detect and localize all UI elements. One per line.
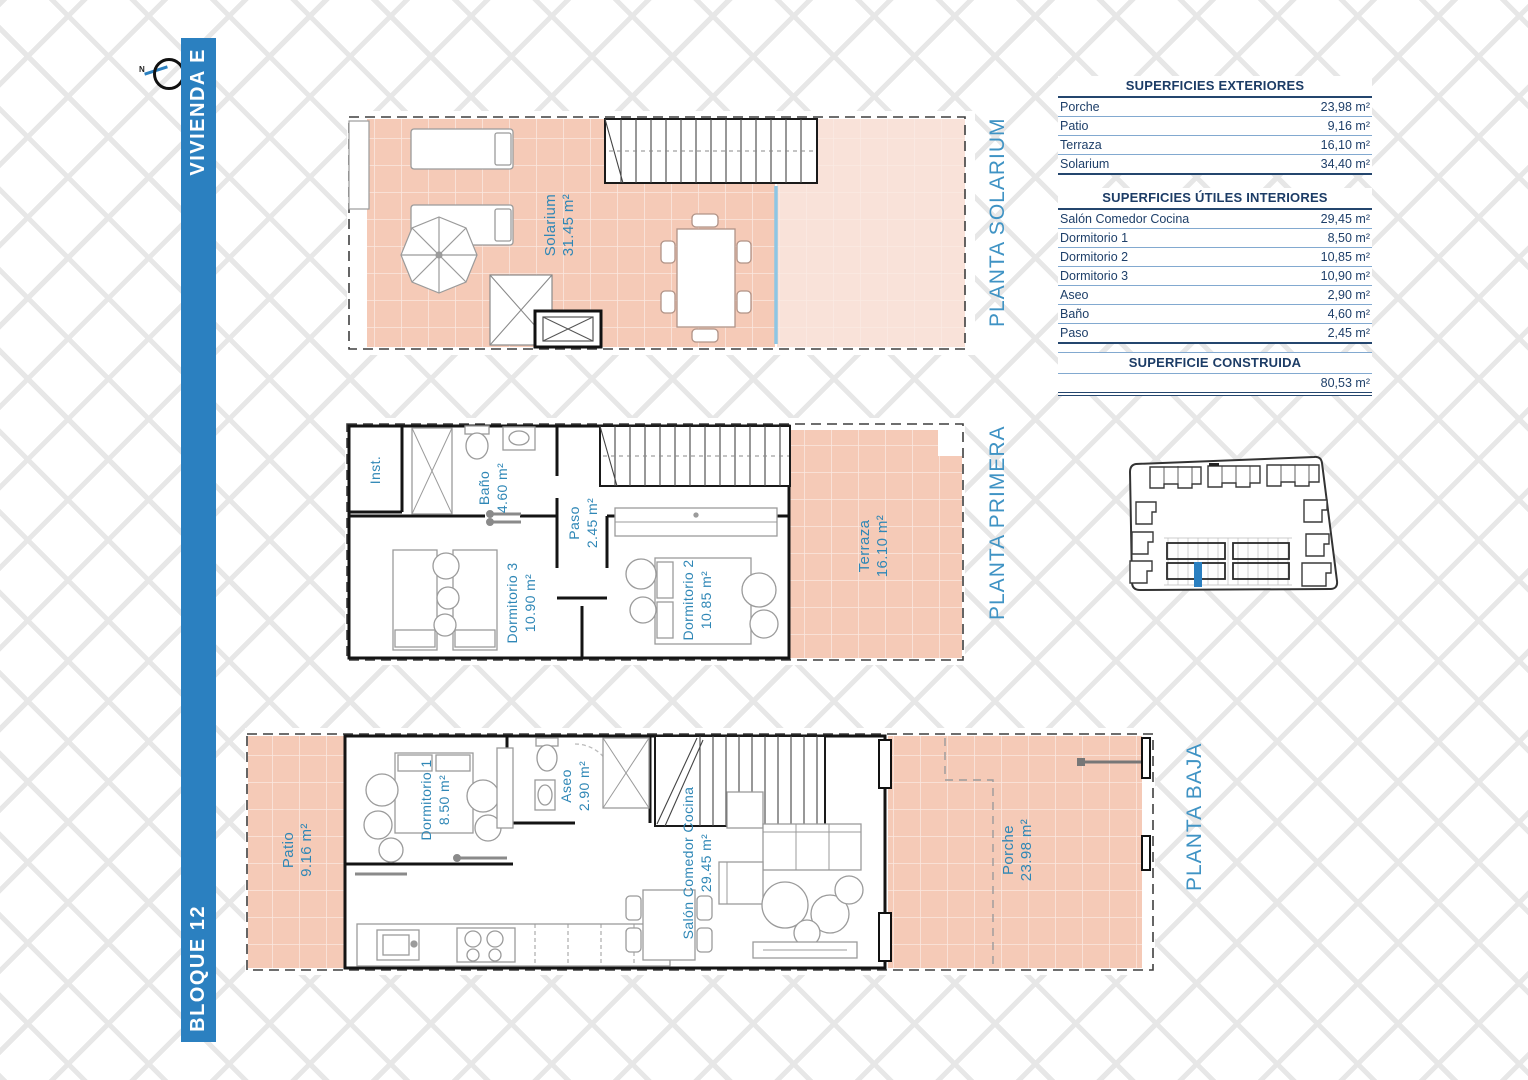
row-label: Salón Comedor Cocina <box>1060 212 1189 226</box>
svg-text:Terraza: Terraza <box>856 519 873 572</box>
beds-dormitorio3-icon <box>393 550 497 650</box>
table-title: SUPERFICIE CONSTRUIDA <box>1058 352 1372 374</box>
row-label: Dormitorio 2 <box>1060 250 1128 264</box>
svg-text:Paso: Paso <box>566 506 582 540</box>
room-label-solarium: Solarium 31.45 m² <box>542 194 577 256</box>
svg-text:29.45 m²: 29.45 m² <box>698 834 714 892</box>
block-banner: VIVIENDA E BLOQUE 12 <box>181 38 216 1042</box>
north-compass-icon: N <box>139 56 185 90</box>
table-row: Solarium 34,40 m² <box>1058 155 1372 175</box>
highlighted-unit <box>1194 562 1202 587</box>
row-label: Aseo <box>1060 288 1089 302</box>
row-label: Baño <box>1060 307 1089 321</box>
table-row: Dormitorio 3 10,90 m² <box>1058 267 1372 286</box>
stairs-icon <box>600 426 790 486</box>
vivienda-label: VIVIENDA E <box>187 48 210 176</box>
row-value: 34,40 m² <box>1321 157 1370 171</box>
row-value: 2,45 m² <box>1328 326 1370 340</box>
plan-title-primera: PLANTA PRIMERA <box>983 418 1013 628</box>
svg-text:Dormitorio 1: Dormitorio 1 <box>418 759 434 840</box>
row-value: 10,90 m² <box>1321 269 1370 283</box>
floorplan-baja: Patio 9.16 m² Dormitorio 1 8.50 m² Aseo … <box>245 728 1155 975</box>
svg-text:8.50 m²: 8.50 m² <box>436 775 452 825</box>
parasol-icon <box>401 217 477 293</box>
table-title: SUPERFICIES ÚTILES INTERIORES <box>1058 188 1372 210</box>
svg-text:Inst.: Inst. <box>367 456 383 484</box>
table-row: 80,53 m² <box>1058 374 1372 396</box>
svg-text:31.45 m²: 31.45 m² <box>560 194 577 256</box>
svg-text:10.85 m²: 10.85 m² <box>698 571 714 629</box>
row-value: 23,98 m² <box>1321 100 1370 114</box>
room-label-terraza: Terraza 16.10 m² <box>856 515 891 577</box>
row-value: 2,90 m² <box>1328 288 1370 302</box>
table-superficies-interiores: SUPERFICIES ÚTILES INTERIORES Salón Come… <box>1058 188 1372 344</box>
stairs-icon <box>605 119 817 183</box>
floorplan-solarium: Solarium 31.45 m² <box>347 111 975 355</box>
row-label: Terraza <box>1060 138 1102 152</box>
svg-text:Dormitorio 3: Dormitorio 3 <box>504 562 520 643</box>
svg-text:Solarium: Solarium <box>542 194 559 256</box>
row-label: Solarium <box>1060 157 1109 171</box>
row-label: Patio <box>1060 119 1089 133</box>
row-value: 16,10 m² <box>1321 138 1370 152</box>
svg-text:2.90 m²: 2.90 m² <box>576 761 592 811</box>
row-label: Porche <box>1060 100 1100 114</box>
room-label-inst: Inst. <box>367 456 383 484</box>
svg-text:Aseo: Aseo <box>558 769 574 803</box>
table-row: Aseo 2,90 m² <box>1058 286 1372 305</box>
plan-title-baja: PLANTA BAJA <box>1180 724 1210 909</box>
row-value: 9,16 m² <box>1328 119 1370 133</box>
table-title: SUPERFICIES EXTERIORES <box>1058 76 1372 98</box>
kitchen-icon <box>357 924 670 966</box>
site-key-plan <box>1116 450 1350 612</box>
svg-text:Porche: Porche <box>1000 825 1017 875</box>
row-label: Dormitorio 1 <box>1060 231 1128 245</box>
table-row: Salón Comedor Cocina 29,45 m² <box>1058 210 1372 229</box>
row-value: 80,53 m² <box>1321 376 1370 390</box>
row-label: Dormitorio 3 <box>1060 269 1128 283</box>
svg-text:Baño: Baño <box>476 471 492 505</box>
svg-text:2.45 m²: 2.45 m² <box>584 498 600 548</box>
table-superficie-construida: SUPERFICIE CONSTRUIDA 80,53 m² <box>1058 352 1372 396</box>
table-row: Paso 2,45 m² <box>1058 324 1372 344</box>
room-label-porche: Porche 23.98 m² <box>1000 819 1035 881</box>
svg-text:10.90 m²: 10.90 m² <box>522 574 538 632</box>
row-value: 10,85 m² <box>1321 250 1370 264</box>
row-value: 4,60 m² <box>1328 307 1370 321</box>
void-notch <box>349 121 369 209</box>
table-row: Patio 9,16 m² <box>1058 117 1372 136</box>
plan-title-solarium: PLANTA SOLARIUM <box>983 108 1013 336</box>
row-value: 29,45 m² <box>1321 212 1370 226</box>
floorplan-primera: Inst. Baño 4.60 m² Paso 2.45 m² Dormitor… <box>345 418 965 665</box>
table-row: Dormitorio 2 10,85 m² <box>1058 248 1372 267</box>
svg-text:Patio: Patio <box>280 832 297 868</box>
svg-text:Salón Comedor Cocina: Salón Comedor Cocina <box>680 787 696 940</box>
row-label: Paso <box>1060 326 1089 340</box>
table-row: Porche 23,98 m² <box>1058 98 1372 117</box>
table-superficies-exteriores: SUPERFICIES EXTERIORES Porche 23,98 m² P… <box>1058 76 1372 175</box>
svg-text:9.16 m²: 9.16 m² <box>298 823 315 877</box>
bloque-label: BLOQUE 12 <box>187 905 210 1032</box>
table-row: Terraza 16,10 m² <box>1058 136 1372 155</box>
closet-icon <box>615 508 777 536</box>
svg-text:4.60 m²: 4.60 m² <box>494 463 510 513</box>
row-value: 8,50 m² <box>1328 231 1370 245</box>
svg-text:16.10 m²: 16.10 m² <box>874 515 891 577</box>
table-row: Dormitorio 1 8,50 m² <box>1058 229 1372 248</box>
table-row: Baño 4,60 m² <box>1058 305 1372 324</box>
svg-text:Dormitorio 2: Dormitorio 2 <box>680 559 696 640</box>
svg-text:23.98 m²: 23.98 m² <box>1018 819 1035 881</box>
